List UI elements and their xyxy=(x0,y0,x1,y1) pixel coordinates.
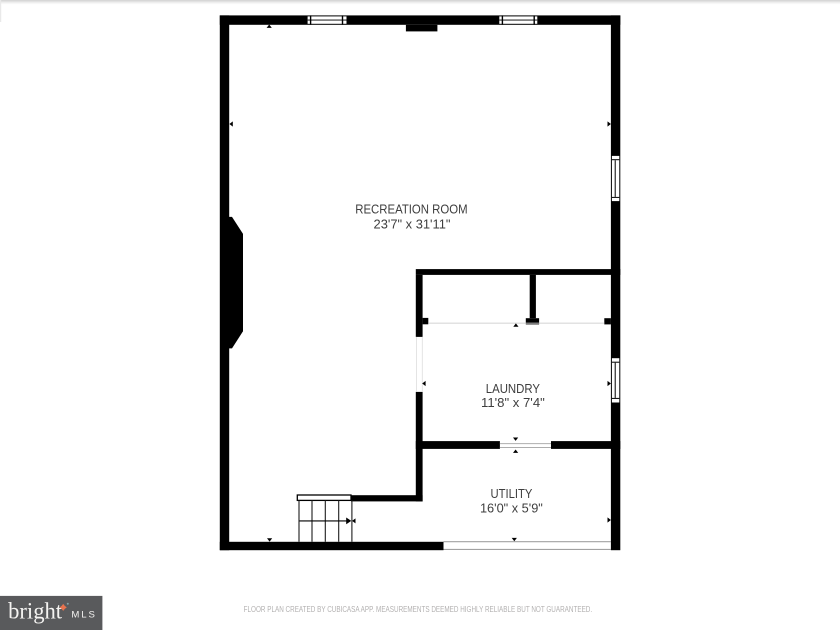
svg-text:bright: bright xyxy=(8,599,63,624)
svg-text:UTILITY: UTILITY xyxy=(490,486,532,501)
svg-text:LAUNDRY: LAUNDRY xyxy=(486,381,540,396)
svg-text:MLS: MLS xyxy=(71,609,95,620)
svg-text:16'0" x 5'9": 16'0" x 5'9" xyxy=(480,500,543,515)
svg-text:FLOOR PLAN CREATED BY CUBICASA: FLOOR PLAN CREATED BY CUBICASA APP. MEAS… xyxy=(244,605,593,614)
svg-text:23'7" x 31'11": 23'7" x 31'11" xyxy=(374,217,451,232)
svg-text:11'8" x 7'4": 11'8" x 7'4" xyxy=(481,395,545,410)
svg-text:RECREATION ROOM: RECREATION ROOM xyxy=(355,201,467,216)
